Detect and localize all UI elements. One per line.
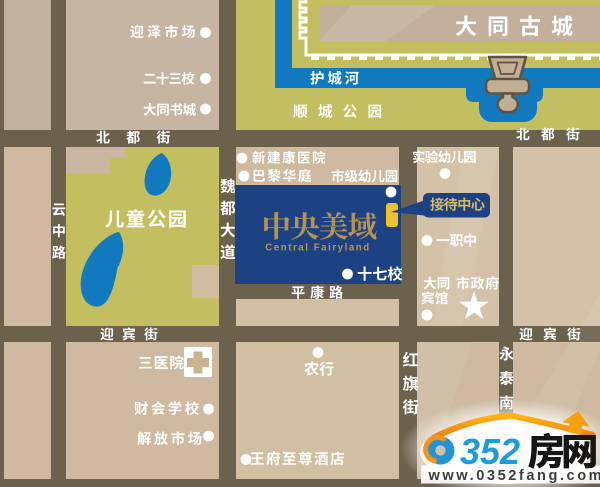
svg-text:352: 352 <box>460 431 520 472</box>
svg-text:Central Fairyland: Central Fairyland <box>265 243 371 254</box>
svg-text:www.0352fang.com: www.0352fang.com <box>428 468 600 484</box>
